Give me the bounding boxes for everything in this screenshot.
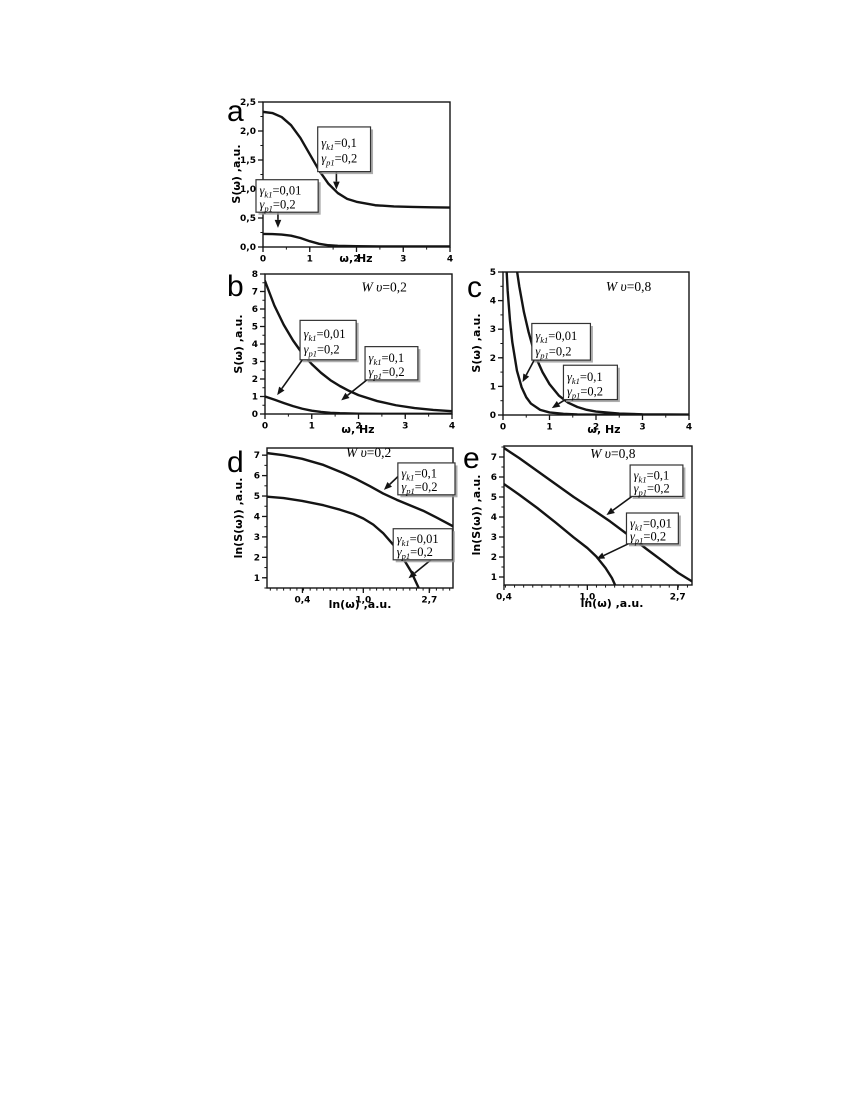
panel-title: W υ=0,8 [606,279,652,294]
annotation-1: γk1=0,1γp1=0,2 [384,463,458,497]
x-tick-label: 0,4 [294,596,310,606]
x-tick-label: 0,4 [496,593,512,603]
annotation-arrow [390,477,398,485]
y-tick-label: 7 [254,451,260,461]
y-axis-label: ln(S(ω)) ,a.u. [232,478,245,559]
y-tick-label: 1 [254,574,260,584]
annotation-arrow [526,360,534,375]
annotation-1: γk1=0,1γp1=0,2 [606,465,685,515]
y-tick-label: 2 [252,375,258,385]
panel-b: 01234012345678W υ=0,2γk1=0,01γp1=0,2γk1=… [227,270,455,436]
y-tick-label: 3 [254,533,260,543]
panel-letter-b: b [227,270,244,303]
x-axis-label: ω, Hz [587,423,620,436]
y-tick-label: 2 [254,553,260,563]
y-tick-label: 6 [491,473,497,483]
annotation-arrowhead [606,508,614,515]
figure-page: 012340,00,51,01,52,02,5γk1=0,1γp1=0,2γk1… [0,0,850,1100]
y-axis-label: ln(S(ω)) ,a.u. [470,475,483,556]
x-tick-label: 2,7 [670,593,686,603]
y-tick-label: 7 [491,453,497,463]
x-tick-label: 1 [307,255,313,265]
panel-title: W υ=0,8 [590,446,636,461]
y-tick-label: 8 [252,270,258,280]
y-tick-label: 4 [490,297,496,307]
panel-a: 012340,00,51,01,52,02,5γk1=0,1γp1=0,2γk1… [227,95,453,265]
y-tick-label: 5 [254,492,260,502]
y-axis-label: S(ω) ,a.u. [230,144,243,203]
annotation-arrow [282,360,303,389]
x-tick-label: 4 [449,422,455,432]
y-tick-label: 3 [490,325,496,335]
y-tick-label: 0,5 [240,214,256,224]
y-tick-label: 4 [252,340,258,350]
y-tick-label: 6 [252,305,258,315]
curve-series-2 [265,397,452,414]
x-tick-label: 3 [400,255,406,265]
annotation-arrow [347,380,366,395]
y-tick-label: 6 [254,472,260,482]
x-tick-label: 4 [686,423,692,433]
y-tick-label: 3 [252,358,258,368]
y-tick-label: 0 [252,410,258,420]
y-tick-label: 5 [490,268,496,278]
curve-series-2 [504,484,617,588]
panel-title: W υ=0,2 [346,445,391,460]
x-tick-label: 4 [447,255,453,265]
y-tick-label: 0 [490,411,496,421]
y-axis-label: S(ω) ,a.u. [232,314,245,373]
annotation-2: γk1=0,01γp1=0,2 [256,180,321,228]
x-tick-label: 1 [309,422,315,432]
x-axis-label: ln(ω) ,a.u. [329,598,392,611]
annotation-arrowhead [277,387,284,395]
panel-e: 0,41,02,71234567W υ=0,8γk1=0,1γp1=0,2γk1… [463,442,692,610]
panel-title: W υ=0,2 [362,280,407,295]
figure-svg: 012340,00,51,01,52,02,5γk1=0,1γp1=0,2γk1… [0,0,850,1100]
x-tick-label: 0 [500,423,506,433]
x-tick-label: 3 [639,423,645,433]
annotation-arrow [613,496,632,510]
y-axis-label: S(ω) ,a.u. [470,313,483,372]
annotation-arrow [604,544,629,556]
annotation-arrowhead [552,401,561,408]
panel-d: 0,41,02,71234567W υ=0,2γk1=0,1γp1=0,2γk1… [227,445,457,611]
x-tick-label: 3 [402,422,408,432]
x-tick-label: 1 [546,423,552,433]
x-axis-label: ω, Hz [339,252,372,265]
annotation-arrowhead [275,220,282,228]
y-tick-label: 1 [490,382,496,392]
y-tick-label: 2,0 [240,127,256,137]
panel-letter-c: c [467,271,482,304]
y-tick-label: 7 [252,288,258,298]
y-tick-label: 2 [490,354,496,364]
y-tick-label: 1 [252,393,258,403]
y-tick-label: 3 [491,533,497,543]
annotation-2: γk1=0,01γp1=0,2 [393,529,455,578]
annotation-arrow [559,400,566,404]
x-tick-label: 0 [262,422,268,432]
y-tick-label: 1 [491,573,497,583]
panel-letter-e: e [463,442,480,475]
y-tick-label: 0,0 [240,243,256,253]
panel-c: 01234012345W υ=0,8γk1=0,01γp1=0,2γk1=0,1… [467,201,692,437]
y-tick-label: 5 [252,323,258,333]
y-tick-label: 2 [491,553,497,563]
x-tick-label: 2,7 [421,596,437,606]
x-axis-label: ln(ω) ,a.u. [581,597,644,610]
x-axis-label: ω, Hz [341,423,374,436]
panel-letter-d: d [227,446,244,479]
annotation-2: γk1=0,1γp1=0,2 [552,365,620,408]
y-tick-label: 5 [491,493,497,503]
annotation-1: γk1=0,01γp1=0,2 [277,320,359,395]
y-tick-label: 4 [491,513,497,523]
panel-letter-a: a [227,95,244,128]
curve-series-2 [263,234,450,246]
y-tick-label: 4 [254,512,260,522]
x-tick-label: 0 [260,255,266,265]
